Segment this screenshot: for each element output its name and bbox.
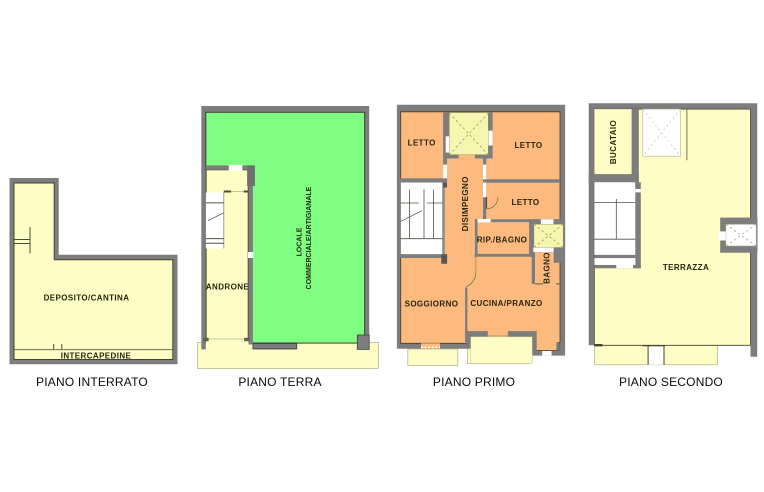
svg-text:PIANO SECONDO: PIANO SECONDO xyxy=(619,375,723,389)
svg-text:PIANO TERRA: PIANO TERRA xyxy=(238,375,321,389)
svg-text:DISIMPEGNO: DISIMPEGNO xyxy=(461,176,470,231)
svg-text:LETTO: LETTO xyxy=(511,198,539,207)
svg-text:RIP./BAGNO: RIP./BAGNO xyxy=(477,235,528,244)
svg-text:CUCINA/PRANZO: CUCINA/PRANZO xyxy=(470,299,542,308)
svg-text:PIANO PRIMO: PIANO PRIMO xyxy=(433,375,515,389)
svg-text:SOGGIORNO: SOGGIORNO xyxy=(405,300,459,309)
svg-text:PIANO INTERRATO: PIANO INTERRATO xyxy=(36,375,148,389)
svg-text:BUCATAIO: BUCATAIO xyxy=(609,120,618,164)
svg-text:LOCALE: LOCALE xyxy=(296,227,303,256)
svg-text:TERRAZZA: TERRAZZA xyxy=(663,263,709,272)
svg-text:LETTO: LETTO xyxy=(514,141,542,150)
svg-text:INTERCAPEDINE: INTERCAPEDINE xyxy=(61,352,132,361)
svg-text:DEPOSITO/CANTINA: DEPOSITO/CANTINA xyxy=(44,293,130,302)
svg-text:ANDRONE: ANDRONE xyxy=(206,283,250,292)
svg-text:LETTO: LETTO xyxy=(408,138,436,147)
svg-text:COMMERCIALE/ARTIGIANALE: COMMERCIALE/ARTIGIANALE xyxy=(306,186,313,289)
svg-text:BAGNO: BAGNO xyxy=(543,252,552,284)
